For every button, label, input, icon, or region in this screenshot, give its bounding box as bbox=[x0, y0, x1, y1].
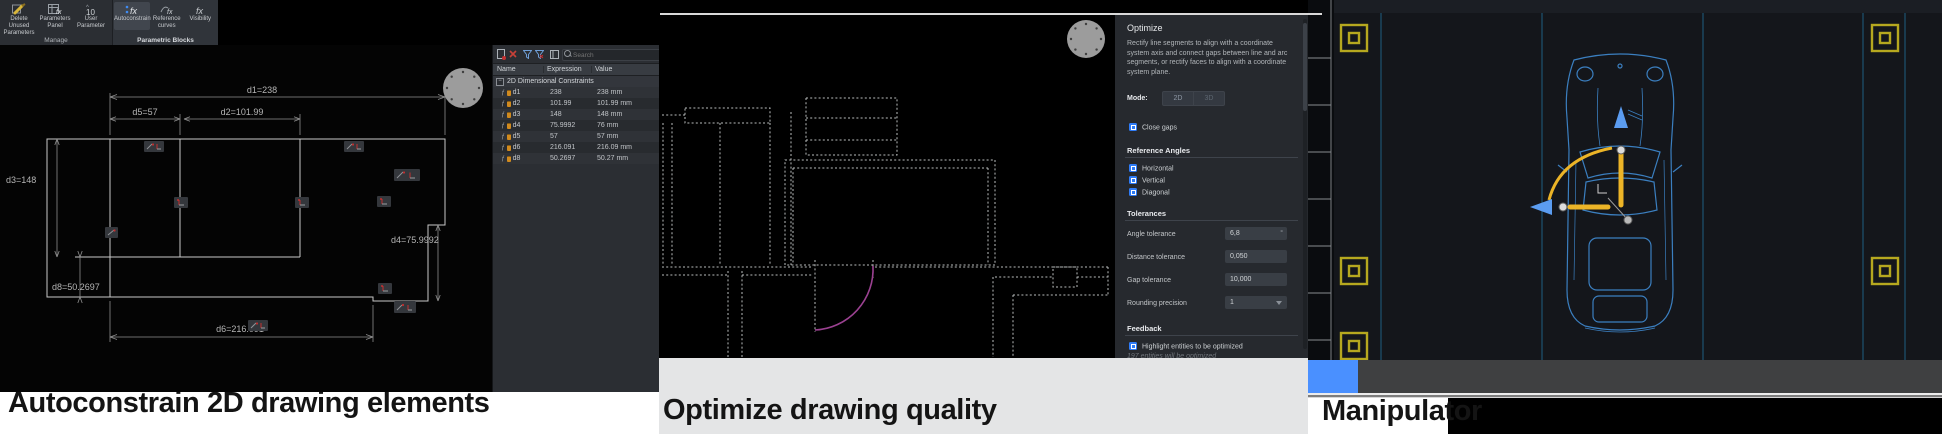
caption-autoconstrain: Autoconstrain 2D drawing elements bbox=[8, 392, 490, 420]
autoconstrain-drawing: d1=238 d5=57 d2=101.99 d3=148 d8=50.2697… bbox=[0, 45, 492, 392]
optimize-panel: Optimize Rectify line segments to align … bbox=[1115, 15, 1308, 358]
vertical-checkbox-row[interactable]: Vertical bbox=[1129, 176, 1165, 185]
fx-icon: ƒ bbox=[501, 144, 505, 151]
autoconstrain-button[interactable]: fx Autoconstrain bbox=[114, 2, 150, 30]
new-parameter-icon[interactable] bbox=[497, 49, 506, 62]
collapse-icon[interactable]: − bbox=[496, 78, 504, 86]
reference-angles-heading: Reference Angles bbox=[1127, 146, 1294, 155]
svg-text:fx: fx bbox=[167, 9, 173, 16]
checkbox-label: Horizontal bbox=[1142, 166, 1174, 173]
parameters-panel-button[interactable]: fx Parameters Panel bbox=[37, 2, 73, 37]
flange-circle-watermark bbox=[443, 68, 483, 108]
checkbox-label: Vertical bbox=[1142, 178, 1165, 185]
constraint-badges bbox=[105, 141, 420, 331]
table-group-row[interactable]: − 2D Dimensional Constraints bbox=[493, 76, 660, 87]
param-value: 76 mm bbox=[594, 122, 660, 129]
drawing-canvas-2d[interactable]: d1=238 d5=57 d2=101.99 d3=148 d8=50.2697… bbox=[0, 45, 492, 392]
parameters-panel: Name Expression Value − 2D Dimensional C… bbox=[492, 45, 660, 392]
distance-tolerance-label: Distance tolerance bbox=[1127, 254, 1185, 261]
field-value: 0,050 bbox=[1230, 253, 1248, 260]
table-header: Name Expression Value bbox=[493, 63, 660, 76]
param-value: 148 mm bbox=[594, 111, 660, 118]
param-expression: 57 bbox=[547, 133, 594, 140]
ribbon-toolbar: Delete Unused Parameters fx Parameters P… bbox=[0, 0, 218, 46]
filter-icon[interactable] bbox=[523, 50, 532, 61]
param-name: d8 bbox=[513, 155, 521, 162]
visibility-button[interactable]: fx Visibility bbox=[184, 2, 218, 30]
visibility-fx-icon: fx bbox=[184, 3, 218, 16]
angle-tolerance-label: Angle tolerance bbox=[1127, 231, 1176, 238]
viewport-top-strip bbox=[1334, 0, 1942, 13]
caption-manipulator: Manipulator bbox=[1322, 395, 1482, 428]
button-label: Parameter bbox=[77, 23, 105, 29]
table-row[interactable]: ƒd8 50.2697 50.27 mm bbox=[493, 153, 660, 164]
fx-icon: ƒ bbox=[501, 133, 505, 140]
param-expression: 50.2697 bbox=[547, 155, 594, 162]
param-expression: 75.9992 bbox=[547, 122, 594, 129]
rounding-precision-label: Rounding precision bbox=[1127, 300, 1187, 307]
manipulator-node[interactable] bbox=[1559, 203, 1567, 211]
horizontal-checkbox-row[interactable]: Horizontal bbox=[1129, 164, 1174, 173]
fx-icon: ƒ bbox=[501, 89, 505, 96]
table-body: ƒd1 238 238 mm ƒd2 101.99 101.99 mm ƒd3 … bbox=[493, 87, 660, 164]
table-row[interactable]: ƒd6 216.091 216.09 mm bbox=[493, 142, 660, 153]
fx-icon: ƒ bbox=[501, 122, 505, 129]
distance-tolerance-input[interactable]: 0,050 bbox=[1225, 250, 1287, 263]
left-grid-strip bbox=[1308, 0, 1334, 362]
column-header-value[interactable]: Value bbox=[592, 66, 660, 73]
panel-description: Rectify line segments to align with a co… bbox=[1127, 39, 1294, 77]
column-header-name[interactable]: Name bbox=[493, 66, 544, 73]
feedback-heading: Feedback bbox=[1127, 324, 1294, 333]
button-label: Parameters bbox=[3, 30, 34, 36]
manipulator-pivot[interactable] bbox=[1624, 216, 1632, 224]
parameters-panel-toolbar bbox=[493, 45, 660, 63]
lock-icon bbox=[507, 156, 511, 162]
svg-text:fx: fx bbox=[130, 6, 138, 16]
ribbon-group-label-manage: Manage bbox=[0, 37, 112, 44]
manipulator-node[interactable] bbox=[1617, 146, 1625, 154]
flange-circle-watermark bbox=[1067, 20, 1105, 58]
checkbox-label: Diagonal bbox=[1142, 190, 1170, 197]
field-value: 1 bbox=[1230, 299, 1234, 306]
floorplan-walls bbox=[662, 98, 1108, 357]
button-label: User bbox=[85, 16, 98, 22]
fx-icon: ƒ bbox=[501, 100, 505, 107]
param-name: d4 bbox=[513, 122, 521, 129]
svg-text:fx: fx bbox=[196, 6, 204, 16]
param-name: d5 bbox=[513, 133, 521, 140]
param-expression: 216.091 bbox=[547, 144, 594, 151]
button-label: curves bbox=[158, 23, 176, 29]
number-10-icon: ^10 bbox=[73, 3, 109, 16]
caption-band-left: Autoconstrain 2D drawing elements bbox=[0, 392, 659, 434]
param-expression: 101.99 bbox=[547, 100, 594, 107]
dim-d5: d5=57 bbox=[132, 107, 157, 117]
mode-3d-button[interactable]: 3D bbox=[1193, 92, 1224, 105]
delete-parameter-icon[interactable] bbox=[509, 50, 517, 60]
lock-icon bbox=[507, 101, 511, 107]
button-label: Reference bbox=[153, 16, 181, 22]
search-input[interactable] bbox=[562, 49, 664, 61]
caption-band-right: Manipulator bbox=[1308, 393, 1942, 434]
param-value: 238 mm bbox=[594, 89, 660, 96]
checkbox-checked-icon[interactable] bbox=[1129, 123, 1137, 131]
table-row[interactable]: ƒd3 148 148 mm bbox=[493, 109, 660, 120]
search-icon bbox=[564, 50, 571, 57]
door-swing-arc bbox=[815, 266, 873, 330]
checkbox-checked-icon[interactable] bbox=[1129, 342, 1137, 350]
param-value: 101.99 mm bbox=[594, 100, 660, 107]
gap-tolerance-input[interactable]: 10,000 bbox=[1225, 273, 1287, 286]
dim-d1: d1=238 bbox=[247, 85, 277, 95]
degree-unit: ° bbox=[1280, 227, 1283, 240]
manipulator-scene bbox=[1308, 0, 1942, 362]
button-label: Panel bbox=[47, 23, 62, 29]
panel-options-icon[interactable] bbox=[550, 50, 559, 61]
panel-scrollbar[interactable] bbox=[1303, 19, 1307, 349]
section-divider bbox=[1125, 157, 1298, 158]
rounding-precision-dropdown[interactable]: 1 bbox=[1225, 296, 1287, 309]
lock-icon bbox=[507, 145, 511, 151]
param-name: d2 bbox=[513, 100, 521, 107]
section-divider bbox=[1125, 220, 1298, 221]
param-value: 216.09 mm bbox=[594, 144, 660, 151]
autoconstrain-fx-icon: fx bbox=[114, 3, 150, 16]
checkbox-label: Close gaps bbox=[1142, 125, 1177, 132]
button-label: Parameters bbox=[39, 16, 70, 22]
group-label: 2D Dimensional Constraints bbox=[507, 78, 594, 85]
fx-icon: ƒ bbox=[501, 155, 505, 162]
user-parameter-button[interactable]: ^10 User Parameter bbox=[73, 2, 109, 37]
param-value: 57 mm bbox=[594, 133, 660, 140]
param-name: d1 bbox=[513, 89, 521, 96]
button-label: Autoconstrain bbox=[114, 16, 151, 22]
param-name: d3 bbox=[513, 111, 521, 118]
scrollbar-thumb[interactable] bbox=[1303, 23, 1307, 111]
table-row[interactable]: ƒd2 101.99 101.99 mm bbox=[493, 98, 660, 109]
dimension-lines bbox=[55, 93, 445, 342]
caption-optimize: Optimize drawing quality bbox=[663, 394, 997, 427]
svg-text:10: 10 bbox=[86, 8, 95, 16]
checkbox-checked-icon[interactable] bbox=[1129, 188, 1137, 196]
mode-2d-button[interactable]: 2D bbox=[1163, 92, 1193, 105]
section-divider bbox=[1125, 335, 1298, 336]
close-gaps-checkbox-row[interactable]: Close gaps bbox=[1129, 123, 1177, 132]
table-row[interactable]: ƒd1 238 238 mm bbox=[493, 87, 660, 98]
gap-tolerance-label: Gap tolerance bbox=[1127, 277, 1171, 284]
lock-icon bbox=[507, 112, 511, 118]
param-expression: 148 bbox=[547, 111, 594, 118]
param-name: d6 bbox=[513, 144, 521, 151]
svg-text:fx: fx bbox=[56, 9, 62, 16]
floorplan-drawing bbox=[659, 0, 1115, 358]
chevron-down-icon bbox=[1276, 301, 1282, 305]
field-value: 6,8 bbox=[1230, 230, 1240, 237]
ribbon-group-manage: Delete Unused Parameters fx Parameters P… bbox=[0, 0, 113, 45]
ribbon-group-parametric-blocks: fx Autoconstrain fx Reference curves fx bbox=[113, 0, 218, 45]
feature-cards-composite: Delete Unused Parameters fx Parameters P… bbox=[0, 0, 1942, 434]
window-top-edge bbox=[660, 13, 1322, 15]
checkbox-checked-icon[interactable] bbox=[1129, 164, 1137, 172]
dim-d8: d8=50.2697 bbox=[52, 282, 100, 292]
param-expression: 238 bbox=[547, 89, 594, 96]
floorplan-canvas[interactable] bbox=[659, 0, 1115, 358]
table-fx-icon: fx bbox=[37, 3, 73, 16]
column-header-expression[interactable]: Expression bbox=[544, 66, 592, 73]
diagonal-checkbox-row[interactable]: Diagonal bbox=[1129, 188, 1170, 197]
caption-band-middle: Optimize drawing quality bbox=[659, 358, 1308, 434]
table-row[interactable]: ƒd4 75.9992 76 mm bbox=[493, 120, 660, 131]
param-value: 50.27 mm bbox=[594, 155, 660, 162]
dim-d2: d2=101.99 bbox=[221, 107, 264, 117]
part-outline bbox=[47, 139, 445, 301]
table-row[interactable]: ƒd5 57 57 mm bbox=[493, 131, 660, 142]
tolerances-heading: Tolerances bbox=[1127, 209, 1294, 218]
angle-tolerance-input[interactable]: 6,8 ° bbox=[1225, 227, 1287, 240]
button-label: Visibility bbox=[189, 16, 211, 22]
checkbox-label: Highlight entities to be optimized bbox=[1142, 344, 1243, 351]
dim-d3: d3=148 bbox=[6, 175, 36, 185]
reference-curves-icon: fx bbox=[150, 3, 184, 16]
highlight-entities-checkbox-row[interactable]: Highlight entities to be optimized bbox=[1129, 342, 1243, 351]
mode-toggle: 2D 3D bbox=[1162, 91, 1225, 106]
manipulator-viewport[interactable] bbox=[1308, 0, 1942, 362]
delete-unused-parameters-button[interactable]: Delete Unused Parameters bbox=[1, 2, 37, 37]
lock-icon bbox=[507, 123, 511, 129]
brush-icon bbox=[1, 3, 37, 16]
panel-title: Optimize bbox=[1127, 23, 1294, 33]
ribbon-group-label-parametric-blocks: Parametric Blocks bbox=[113, 37, 218, 44]
viewport-background bbox=[1334, 0, 1942, 362]
video-progress-played[interactable] bbox=[1308, 360, 1358, 393]
field-value: 10,000 bbox=[1230, 276, 1251, 283]
reference-curves-button[interactable]: fx Reference curves bbox=[150, 2, 184, 30]
video-progress-track[interactable] bbox=[1358, 360, 1942, 393]
dim-d4: d4=75.9992 bbox=[391, 235, 439, 245]
checkbox-checked-icon[interactable] bbox=[1129, 176, 1137, 184]
fx-icon: ƒ bbox=[501, 111, 505, 118]
lock-icon bbox=[507, 134, 511, 140]
button-label: Delete Unused bbox=[9, 16, 30, 29]
lock-icon bbox=[507, 90, 511, 96]
filter-clear-icon[interactable] bbox=[535, 50, 544, 61]
